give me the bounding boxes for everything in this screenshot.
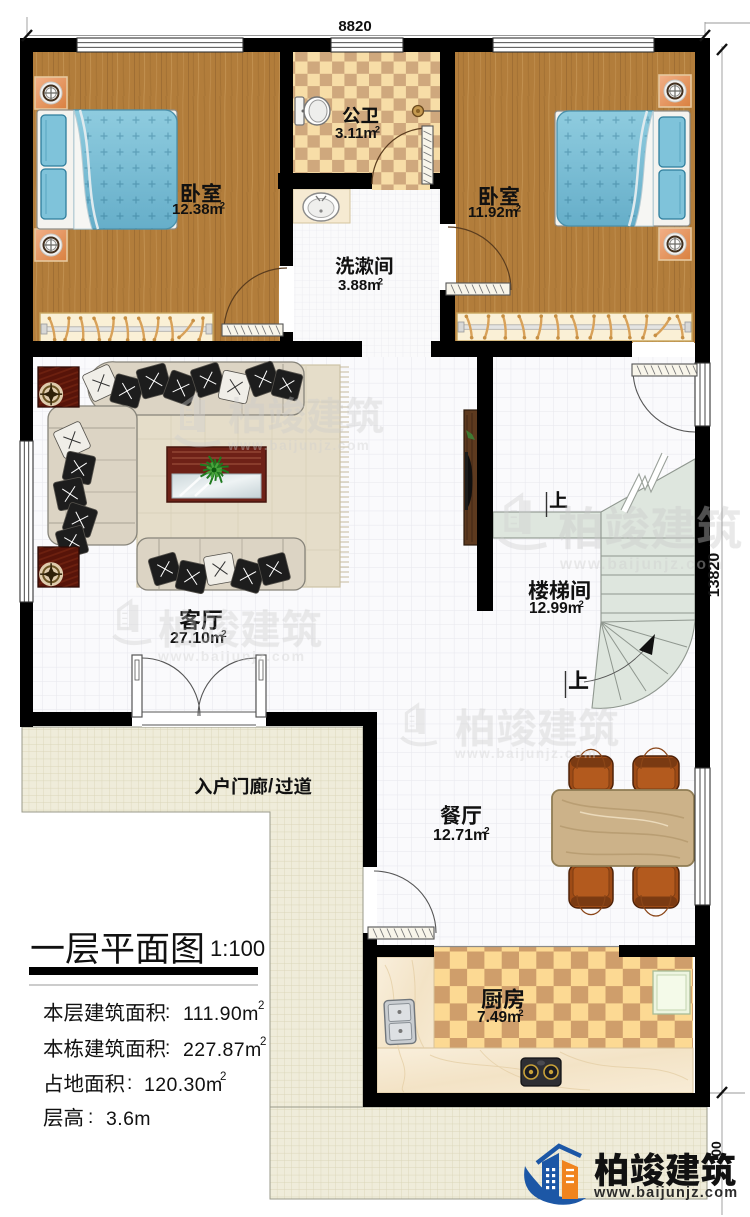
svg-text::: : [165, 1038, 170, 1059]
svg-text:1:100: 1:100 [210, 936, 265, 961]
svg-text:www.baijunjz.com: www.baijunjz.com [454, 746, 597, 761]
svg-text:2: 2 [579, 599, 584, 610]
svg-text:2: 2 [260, 1036, 266, 1048]
svg-text:12.71m: 12.71m [433, 827, 487, 844]
svg-text:2: 2 [375, 124, 380, 134]
svg-text:120.30m: 120.30m [144, 1074, 223, 1096]
svg-text:www.baijunjz.com: www.baijunjz.com [157, 648, 306, 664]
svg-text:/: / [268, 776, 274, 797]
svg-text:13820: 13820 [706, 553, 723, 598]
svg-text:www.baijunjz.com: www.baijunjz.com [559, 556, 724, 573]
svg-text:12.38m: 12.38m [172, 201, 223, 218]
svg-text:3.88m: 3.88m [338, 277, 381, 294]
svg-text:2: 2 [518, 1008, 523, 1019]
svg-text:227.87m: 227.87m [183, 1039, 262, 1061]
svg-text:7.49m: 7.49m [477, 1009, 521, 1026]
svg-text:2: 2 [378, 276, 383, 286]
svg-text:2: 2 [258, 1000, 264, 1012]
svg-text::: : [165, 1002, 170, 1023]
svg-text:2: 2 [220, 1071, 226, 1083]
svg-text:2: 2 [220, 200, 225, 210]
svg-text:2: 2 [484, 826, 490, 837]
svg-text:2: 2 [516, 203, 521, 213]
svg-text:3.11m: 3.11m [335, 125, 377, 142]
svg-text:111.90m: 111.90m [183, 1003, 259, 1025]
svg-text:3.6m: 3.6m [106, 1108, 151, 1130]
svg-text:11.92m: 11.92m [468, 204, 518, 221]
svg-text::: : [127, 1073, 132, 1094]
svg-text::: : [88, 1107, 93, 1128]
svg-text:8820: 8820 [338, 18, 371, 35]
svg-text:www.baijunjz.com: www.baijunjz.com [227, 438, 370, 453]
svg-text:www.baijunjz.com: www.baijunjz.com [593, 1185, 738, 1201]
svg-text:12.99m: 12.99m [529, 600, 582, 617]
